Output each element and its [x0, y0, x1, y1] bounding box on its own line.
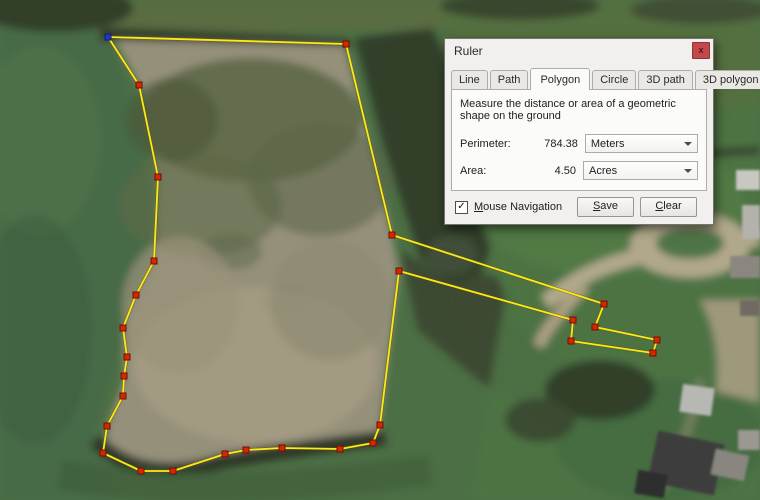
perimeter-label: Perimeter: — [460, 138, 544, 150]
dialog-title: Ruler — [454, 44, 483, 58]
polygon-vertex[interactable] — [570, 317, 576, 323]
area-label: Area: — [460, 165, 546, 177]
tab-polygon[interactable]: Polygon — [530, 68, 590, 90]
polygon-vertex[interactable] — [222, 451, 228, 457]
tab-3d-path[interactable]: 3D path — [638, 70, 693, 89]
close-icon[interactable]: x — [692, 42, 710, 59]
mouse-navigation-label: Mouse Navigation — [474, 201, 562, 213]
polygon-vertex[interactable] — [243, 447, 249, 453]
clear-button[interactable]: Clear — [640, 197, 697, 217]
polygon-vertex[interactable] — [343, 41, 349, 47]
save-button[interactable]: Save — [577, 197, 634, 217]
polygon-vertex[interactable] — [370, 440, 376, 446]
area-value: 4.50 — [546, 165, 583, 177]
polygon-vertex[interactable] — [654, 337, 660, 343]
tab-circle[interactable]: Circle — [592, 70, 636, 89]
polygon-start-vertex[interactable] — [105, 34, 111, 40]
polygon-vertex[interactable] — [104, 423, 110, 429]
area-unit-select[interactable]: Acres — [583, 161, 698, 180]
chevron-down-icon — [684, 169, 692, 173]
perimeter-value: 784.38 — [544, 138, 585, 150]
polygon-vertex[interactable] — [396, 268, 402, 274]
tab-line[interactable]: Line — [451, 70, 488, 89]
polygon-vertex[interactable] — [337, 446, 343, 452]
polygon-vertex[interactable] — [133, 292, 139, 298]
polygon-vertex[interactable] — [155, 174, 161, 180]
mouse-navigation-checkbox[interactable]: ✓ — [455, 201, 468, 214]
dialog-footer: ✓ Mouse Navigation Save Clear — [445, 191, 713, 224]
polygon-vertex[interactable] — [389, 232, 395, 238]
polygon-vertex[interactable] — [650, 350, 656, 356]
polygon-vertex[interactable] — [136, 82, 142, 88]
polygon-vertex[interactable] — [279, 445, 285, 451]
tab-bar: Line Path Polygon Circle 3D path 3D poly… — [445, 65, 713, 89]
perimeter-unit-value: Meters — [591, 138, 625, 150]
polygon-vertex[interactable] — [568, 338, 574, 344]
polygon-vertex[interactable] — [121, 373, 127, 379]
chevron-down-icon — [684, 142, 692, 146]
polygon-vertex[interactable] — [170, 468, 176, 474]
polygon-vertex[interactable] — [592, 324, 598, 330]
polygon-vertex[interactable] — [124, 354, 130, 360]
polygon-vertex[interactable] — [138, 468, 144, 474]
polygon-vertex[interactable] — [151, 258, 157, 264]
polygon-vertex[interactable] — [120, 393, 126, 399]
google-earth-window: Ruler x Line Path Polygon Circle 3D path… — [0, 0, 760, 500]
tab-panel: Measure the distance or area of a geomet… — [451, 89, 707, 191]
perimeter-row: Perimeter: 784.38 Meters — [460, 134, 698, 153]
polygon-vertex[interactable] — [100, 450, 106, 456]
ruler-dialog: Ruler x Line Path Polygon Circle 3D path… — [444, 38, 714, 225]
perimeter-unit-select[interactable]: Meters — [585, 134, 698, 153]
area-row: Area: 4.50 Acres — [460, 161, 698, 180]
tab-path[interactable]: Path — [490, 70, 529, 89]
checkmark-icon: ✓ — [457, 201, 465, 212]
area-unit-value: Acres — [589, 165, 617, 177]
polygon-vertex[interactable] — [120, 325, 126, 331]
dialog-titlebar[interactable]: Ruler x — [445, 39, 713, 65]
polygon-vertex[interactable] — [377, 422, 383, 428]
polygon-vertex[interactable] — [601, 301, 607, 307]
tab-3d-polygon[interactable]: 3D polygon — [695, 70, 760, 89]
measure-description: Measure the distance or area of a geomet… — [460, 98, 698, 122]
